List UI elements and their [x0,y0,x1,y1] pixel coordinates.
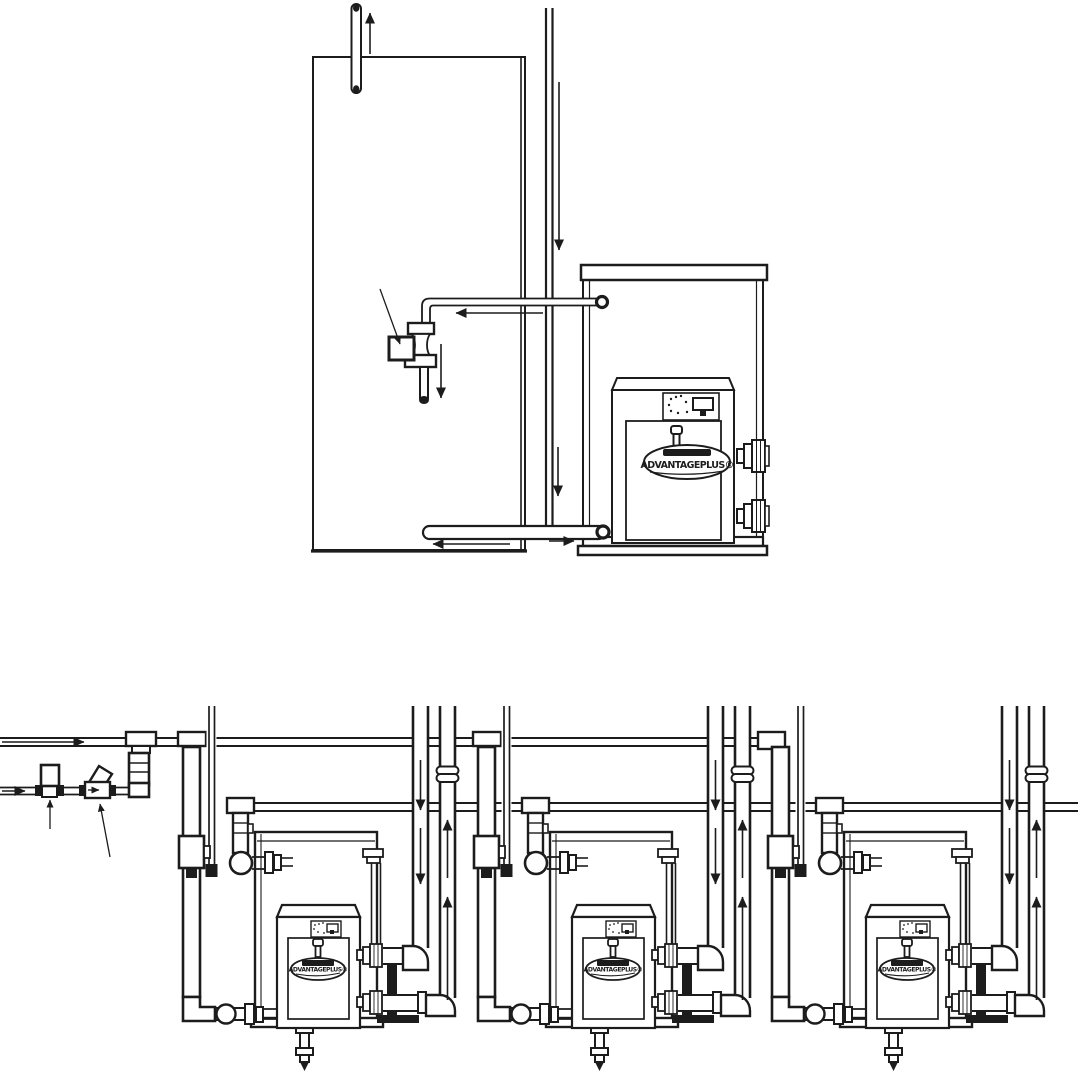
heater-module-1 [179,706,459,1071]
heater-cabinet: ADVANTAGEPLUS® [578,265,769,555]
heater-module-2 [474,706,754,1071]
door-knob [671,426,682,447]
control-panel [663,393,719,420]
bottom-diagram-three-heater-manifold: ADVANTAGEPLUS® ADVANTAGEPLUS® ADVANTAGEP… [0,706,1078,1071]
brand-logo-text: ADVANTAGEPLUS® [641,460,734,471]
make-up-riser [126,732,156,797]
make-up-water-line [0,732,156,857]
cold-supply-header [0,738,770,746]
supply-tee-unit-1 [178,732,206,746]
heater-front-panel: ADVANTAGEPLUS® [612,378,734,543]
brand-logo-text-unit-3: ADVANTAGEPLUS® [878,966,937,974]
piping-diagram-figure: ADVANTAGEPLUS® [0,0,1078,1071]
piping-diagrams-canvas: ADVANTAGEPLUS® [0,0,1078,1071]
valve-actuator [389,337,414,360]
brand-logo-text-unit-2: ADVANTAGEPLUS® [584,966,643,974]
heater-module-3 [768,706,1048,1071]
y-strainer [79,766,116,798]
top-diagram-single-heater: ADVANTAGEPLUS® [311,4,769,555]
vent-pipe [546,8,559,527]
hot-return-header [241,803,1078,811]
brand-logo-text-unit-1: ADVANTAGEPLUS® [289,966,348,974]
brand-logo-plate: ADVANTAGEPLUS® [641,445,734,479]
strainer-callout-arrow [100,804,110,857]
supply-tee-unit-2 [473,732,501,746]
pressure-reducing-valve [35,765,64,797]
